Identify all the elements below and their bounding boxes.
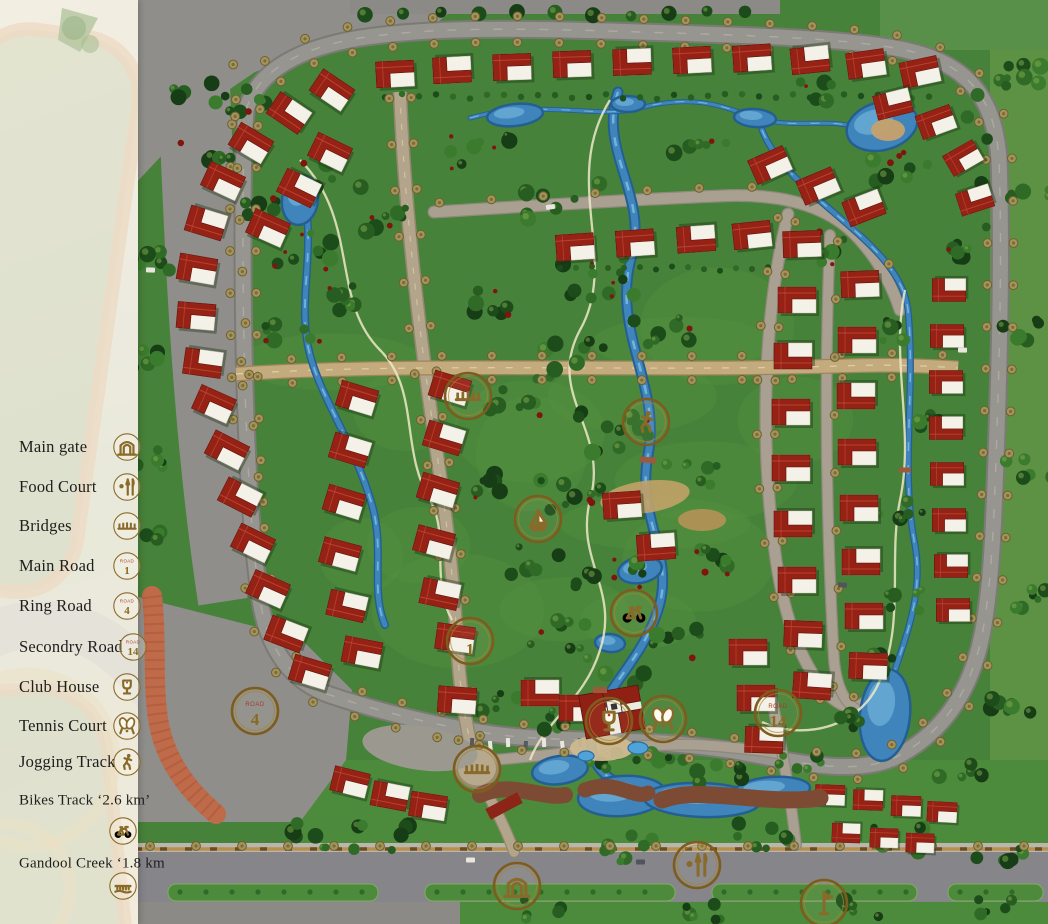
secondry-road-marker[interactable]: ROAD14: [755, 690, 801, 736]
legend-label-ring-road: Ring Road: [19, 596, 92, 616]
legend-item-secondry-road: Secondry RoadROAD14: [0, 630, 138, 664]
legend-panel: Main gateFood CourtBridgesMain RoadROAD1…: [0, 0, 138, 924]
car: [838, 582, 847, 588]
south-boulevard: [135, 843, 1048, 924]
legend-label-secondry-road: Secondry Road: [19, 637, 123, 657]
svg-text:ROAD: ROAD: [768, 704, 787, 710]
legend-road-icon: ROAD1: [112, 551, 142, 581]
bridges-marker-north[interactable]: [445, 373, 491, 419]
car: [636, 860, 645, 865]
main-road-marker[interactable]: ROAD1: [447, 618, 493, 664]
bikes-track-marker[interactable]: [611, 590, 657, 636]
legend-item-club-house: Club House: [0, 670, 138, 704]
svg-text:4: 4: [124, 605, 130, 617]
svg-text:ROAD: ROAD: [120, 598, 134, 603]
legend-label-gandool-creek: Gandool Creek ‘1.8 km: [19, 856, 165, 873]
legend-label-club-house: Club House: [19, 677, 99, 697]
signpost-marker[interactable]: [801, 880, 847, 924]
main-gate-marker[interactable]: [494, 863, 540, 909]
car: [146, 267, 155, 272]
legend-club-icon: [112, 672, 142, 702]
legend-tennis-icon: [112, 711, 142, 741]
car: [958, 347, 967, 352]
legend-item-food-court: Food Court: [0, 470, 138, 504]
legend-label-main-gate: Main gate: [19, 437, 87, 457]
svg-text:14: 14: [770, 712, 788, 731]
legend: Main gateFood CourtBridgesMain RoadROAD1…: [0, 0, 138, 924]
car: [466, 858, 475, 863]
svg-text:14: 14: [128, 646, 140, 658]
legend-road-icon: ROAD14: [118, 632, 148, 662]
legend-label-jogging-track: Jogging Track: [19, 752, 116, 772]
legend-label-main-road: Main Road: [19, 556, 95, 576]
svg-text:1: 1: [124, 565, 130, 577]
legend-food-icon: [112, 472, 142, 502]
svg-text:ROAD: ROAD: [126, 639, 140, 644]
legend-item-main-gate: Main gate: [0, 430, 138, 464]
legend-jogging-icon: [112, 747, 142, 777]
food-court-marker[interactable]: [674, 842, 720, 888]
legend-creek-icon: [108, 871, 138, 901]
legend-road-icon: ROAD4: [112, 591, 142, 621]
legend-label-bridges: Bridges: [19, 516, 72, 536]
tennis-court-marker[interactable]: [640, 696, 686, 742]
legend-label-food-court: Food Court: [19, 477, 97, 497]
jogging-track-marker[interactable]: [623, 399, 669, 445]
svg-text:ROAD: ROAD: [460, 632, 479, 638]
legend-item-main-road: Main RoadROAD1: [0, 549, 138, 583]
legend-item-gandool-creek: Gandool Creek ‘1.8 km: [0, 847, 138, 881]
legend-label-bikes-track: Bikes Track ‘2.6 km’: [19, 793, 151, 810]
legend-item-ring-road: Ring RoadROAD4: [0, 589, 138, 623]
bridges-marker-south[interactable]: [454, 746, 500, 792]
legend-gate-icon: [112, 432, 142, 462]
legend-item-jogging-track: Jogging Track: [0, 745, 138, 779]
legend-item-bikes-track: Bikes Track ‘2.6 km’: [0, 784, 138, 818]
svg-text:1: 1: [466, 640, 475, 659]
gandool-creek-marker[interactable]: [515, 496, 561, 542]
ring-road-marker[interactable]: ROAD4: [232, 688, 278, 734]
club-house-marker[interactable]: [586, 698, 632, 744]
legend-bike-icon: [108, 816, 138, 846]
svg-text:4: 4: [251, 710, 260, 729]
svg-text:ROAD: ROAD: [120, 558, 134, 563]
master-plan-map: ROAD1ROAD4ROAD14: [0, 0, 1048, 924]
master-plan-page: ROAD1ROAD4ROAD14 Main gateFood CourtBrid…: [0, 0, 1048, 924]
legend-item-tennis-court: Tennis Court: [0, 709, 138, 743]
svg-text:ROAD: ROAD: [245, 702, 264, 708]
legend-bridge-icon: [112, 511, 142, 541]
legend-item-bridges: Bridges: [0, 509, 138, 543]
legend-label-tennis-court: Tennis Court: [19, 716, 107, 736]
